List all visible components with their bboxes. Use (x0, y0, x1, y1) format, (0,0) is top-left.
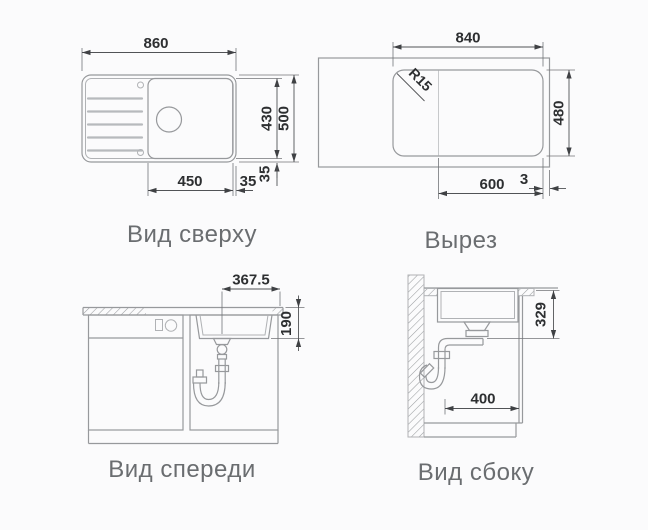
dim-label-450: 450 (177, 173, 202, 190)
plinth-front (89, 430, 279, 444)
countertop-outline (319, 58, 550, 167)
side-view: 329 400 Вид сбоку (408, 275, 560, 486)
caption-front-view: Вид спереди (108, 456, 256, 483)
pipe-nut-side (434, 352, 450, 359)
drain-nut-side (466, 331, 488, 337)
dim-label-840: 840 (455, 30, 480, 47)
trap-nut (193, 377, 207, 383)
cutout-view: R15 840 480 600 3 Вырез (319, 30, 576, 255)
drain-nut (217, 345, 227, 355)
drain-flange (214, 339, 231, 345)
countertop-front (83, 308, 283, 316)
drain-hole (157, 107, 182, 132)
drawing-canvas: 860 500 430 450 35 35 (0, 0, 648, 530)
dim-840: 840 (393, 30, 543, 67)
sink-bowl-front (196, 315, 272, 339)
front-view: 367.5 190 Вид спереди (83, 272, 305, 484)
dim-label-r15: R15 (406, 65, 436, 95)
dim-400: 400 (445, 391, 519, 415)
wall-section (408, 275, 424, 437)
dim-label-35h: 35 (240, 173, 257, 190)
dim-190: 190 (271, 296, 305, 352)
panel-switch-icon (156, 320, 163, 331)
sink-outline-top (82, 75, 236, 162)
dim-35-vertical: 35 (257, 163, 278, 186)
top-view: 860 500 430 450 35 35 (82, 35, 299, 248)
dim-label-600: 600 (479, 176, 504, 193)
dim-860: 860 (82, 35, 236, 71)
dim-label-400: 400 (470, 391, 495, 408)
trap-outer (194, 382, 226, 406)
panel-knob-icon (165, 320, 176, 331)
trap-inner (200, 382, 219, 400)
drain-cone (464, 322, 490, 331)
bowl-top (148, 79, 233, 159)
left-cabinet (89, 315, 184, 430)
caption-side-view: Вид сбоку (418, 459, 534, 486)
dim-35-horizontal: 35 (236, 166, 256, 196)
sink-bowl-side (438, 289, 519, 323)
dim-label-367-5: 367.5 (232, 272, 270, 289)
dim-label-329: 329 (533, 302, 550, 327)
caption-top-view: Вид сверху (127, 221, 257, 248)
sink-technical-drawing: 860 500 430 450 35 35 (0, 0, 648, 530)
siphon-front (193, 339, 231, 407)
dim-label-430: 430 (259, 106, 276, 131)
dim-430: 430 (236, 79, 282, 159)
pipe-nut (216, 366, 229, 372)
dim-label-35v: 35 (257, 166, 274, 183)
dim-label-190: 190 (278, 311, 295, 336)
caption-cutout: Вырез (425, 227, 498, 254)
dim-480: 480 (547, 70, 576, 156)
dim-450: 450 (148, 163, 233, 196)
dim-label-480: 480 (551, 100, 568, 125)
siphon-side (420, 322, 491, 389)
dim-329: 329 (487, 291, 560, 339)
drainboard-grooves (88, 99, 142, 151)
dim-label-860: 860 (143, 35, 168, 52)
dim-label-3: 3 (520, 171, 528, 188)
dim-label-500: 500 (276, 106, 293, 131)
mount-hole-top (138, 82, 144, 88)
dim-367-5: 367.5 (222, 272, 280, 335)
